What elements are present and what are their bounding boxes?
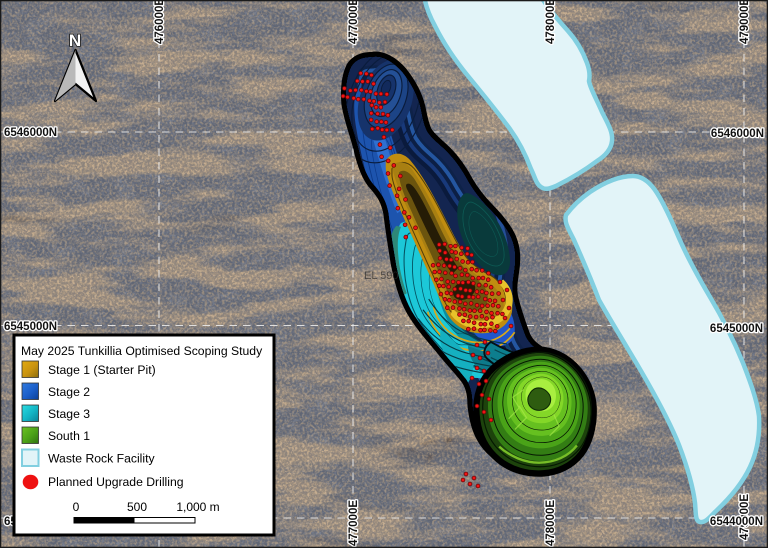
svg-text:1,000 m: 1,000 m	[176, 500, 219, 514]
svg-text:Stage 3: Stage 3	[48, 407, 90, 421]
svg-text:0: 0	[73, 500, 80, 514]
svg-text:Planned Upgrade Drilling: Planned Upgrade Drilling	[48, 475, 184, 489]
svg-text:476000E: 476000E	[154, 0, 166, 44]
svg-text:6544000N: 6544000N	[710, 516, 763, 528]
svg-text:Stage 1 (Starter Pit): Stage 1 (Starter Pit)	[48, 363, 156, 377]
svg-text:Waste Rock Facility: Waste Rock Facility	[48, 452, 155, 466]
svg-text:6545000N: 6545000N	[4, 321, 57, 333]
svg-text:6546000N: 6546000N	[4, 127, 57, 139]
svg-text:N: N	[69, 31, 81, 50]
svg-text:May 2025 Tunkillia Optimised S: May 2025 Tunkillia Optimised Scoping Stu…	[21, 344, 263, 358]
svg-text:479000E: 479000E	[739, 0, 751, 44]
svg-text:EL 590: EL 590	[364, 270, 398, 282]
svg-text:6545000N: 6545000N	[710, 323, 763, 335]
svg-text:500: 500	[127, 500, 147, 514]
svg-text:477000E: 477000E	[348, 0, 360, 44]
svg-text:South 1: South 1	[48, 429, 90, 443]
svg-text:477000E: 477000E	[348, 500, 360, 546]
svg-text:478000E: 478000E	[545, 500, 557, 546]
svg-text:Stage 2: Stage 2	[48, 385, 90, 399]
svg-text:478000E: 478000E	[545, 0, 557, 44]
svg-text:6546000N: 6546000N	[711, 128, 764, 140]
